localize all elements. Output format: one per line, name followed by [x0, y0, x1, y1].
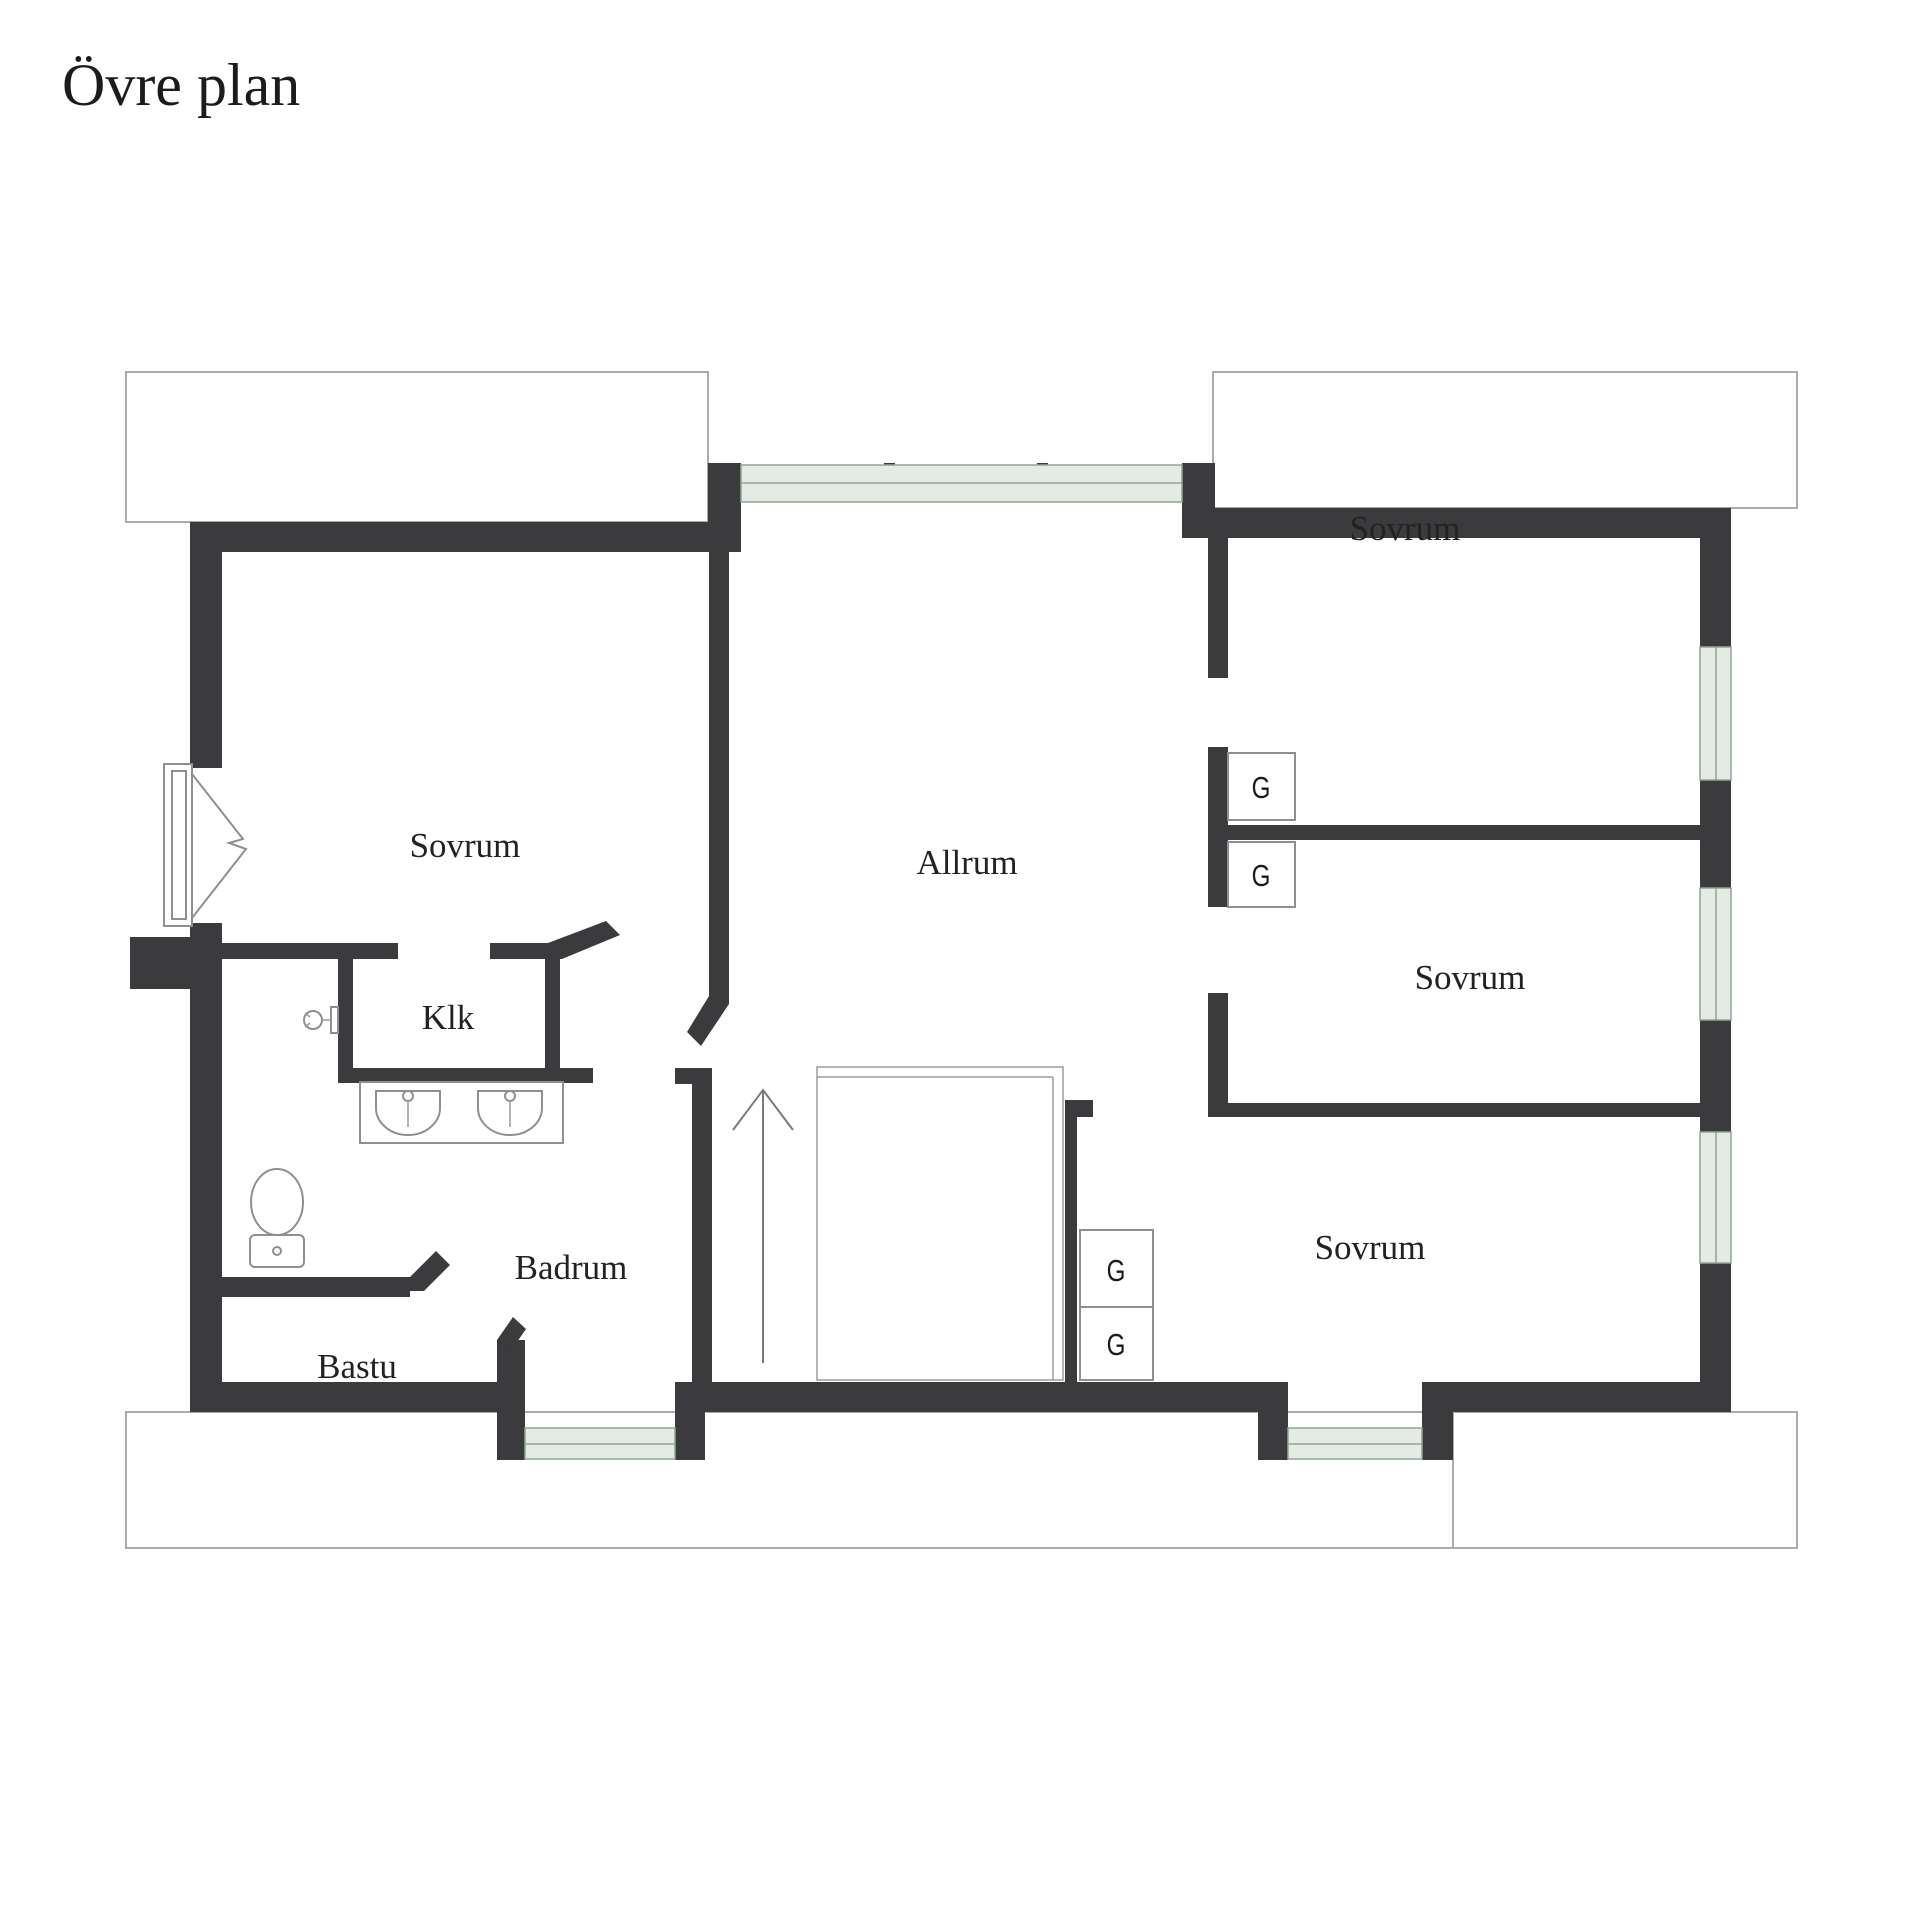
roof-rect-bottom-right: [1453, 1412, 1797, 1548]
stair-void-outline: [817, 1067, 1063, 1380]
wardrobes: G G G G: [1080, 753, 1295, 1380]
roof-rect-top-left: [126, 372, 708, 522]
floor-plan-svg: Övre plan: [0, 0, 1920, 1920]
stairs-up-arrow-icon: [733, 1090, 793, 1363]
sink-icon: [360, 1082, 563, 1143]
toilet-icon: [250, 1169, 304, 1267]
room-label-klk: Klk: [422, 998, 475, 1037]
room-label-sovrum-top-right: Sovrum: [1350, 509, 1461, 548]
wardrobe-label: G: [1107, 1327, 1126, 1362]
roof-rect-bottom-left: [126, 1412, 1453, 1548]
room-label-sovrum-middle-right: Sovrum: [1415, 958, 1526, 997]
room-label-bastu: Bastu: [317, 1347, 397, 1386]
window-icon-left-casement: [164, 764, 246, 926]
stairs: [733, 1067, 1063, 1380]
room-label-sovrum-bottom-right: Sovrum: [1315, 1228, 1426, 1267]
floor-plan-page: Övre plan: [0, 0, 1920, 1920]
faucet-icon: [304, 1007, 338, 1033]
roof-rect-top-right: [1213, 372, 1797, 508]
wardrobe-label: G: [1252, 858, 1271, 893]
room-label-allrum: Allrum: [916, 843, 1017, 882]
bathroom-fixtures: [250, 1007, 563, 1267]
room-label-sovrum-top-left: Sovrum: [410, 826, 521, 865]
page-title: Övre plan: [62, 52, 300, 118]
wardrobe-label: G: [1252, 770, 1271, 805]
wardrobe-label: G: [1107, 1253, 1126, 1288]
room-label-badrum: Badrum: [515, 1248, 628, 1287]
